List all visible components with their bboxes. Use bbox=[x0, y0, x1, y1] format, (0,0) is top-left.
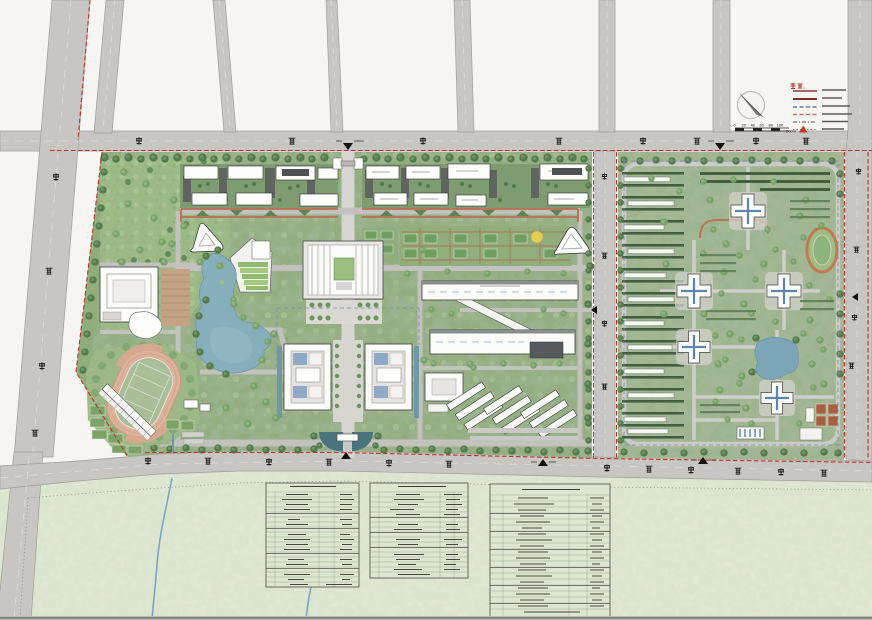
svg-text:60: 60 bbox=[760, 123, 765, 128]
svg-text:40: 40 bbox=[751, 123, 756, 128]
svg-text:100: 100 bbox=[777, 123, 784, 128]
svg-text:200m: 200m bbox=[786, 129, 797, 134]
svg-text:20: 20 bbox=[742, 123, 747, 128]
svg-text:80: 80 bbox=[769, 123, 774, 128]
